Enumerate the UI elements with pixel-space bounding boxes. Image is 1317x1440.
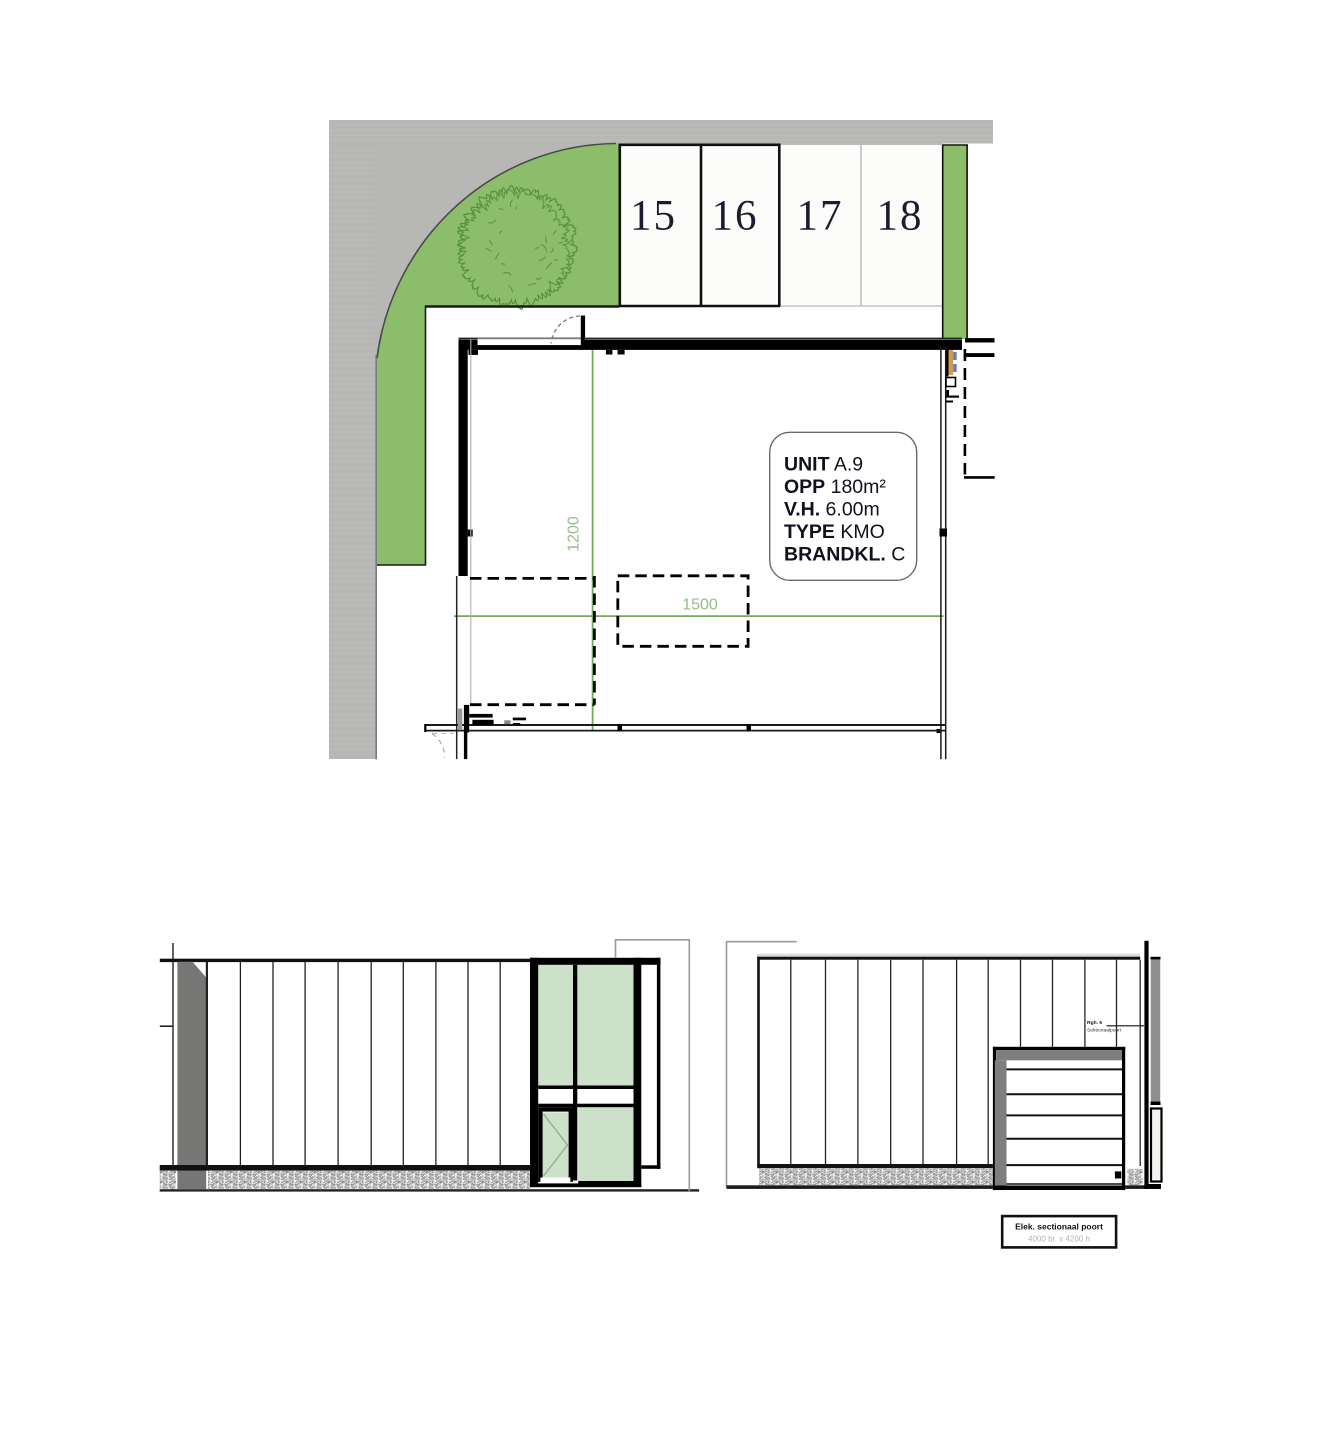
svg-text:1200: 1200 (566, 516, 583, 552)
svg-text:UNIT A.9: UNIT A.9 (784, 454, 863, 476)
svg-text:4000 br. x 4200 h: 4000 br. x 4200 h (1028, 1235, 1090, 1244)
svg-text:1500: 1500 (682, 597, 718, 614)
svg-text:Rgh. 5: Rgh. 5 (1087, 1020, 1102, 1026)
svg-text:BRANDKL. C: BRANDKL. C (784, 544, 905, 566)
svg-text:Elek. sectionaal poort: Elek. sectionaal poort (1015, 1222, 1103, 1232)
svg-text:Sektionaalpoort: Sektionaalpoort (1087, 1028, 1122, 1034)
svg-text:17: 17 (797, 193, 844, 240)
svg-text:V.H. 6.00m: V.H. 6.00m (784, 499, 880, 521)
svg-text:16: 16 (712, 193, 759, 240)
svg-text:18: 18 (877, 193, 924, 240)
svg-text:15: 15 (630, 193, 677, 240)
svg-text:OPP 180m²: OPP 180m² (784, 476, 886, 498)
svg-text:TYPE KMO: TYPE KMO (784, 521, 885, 543)
